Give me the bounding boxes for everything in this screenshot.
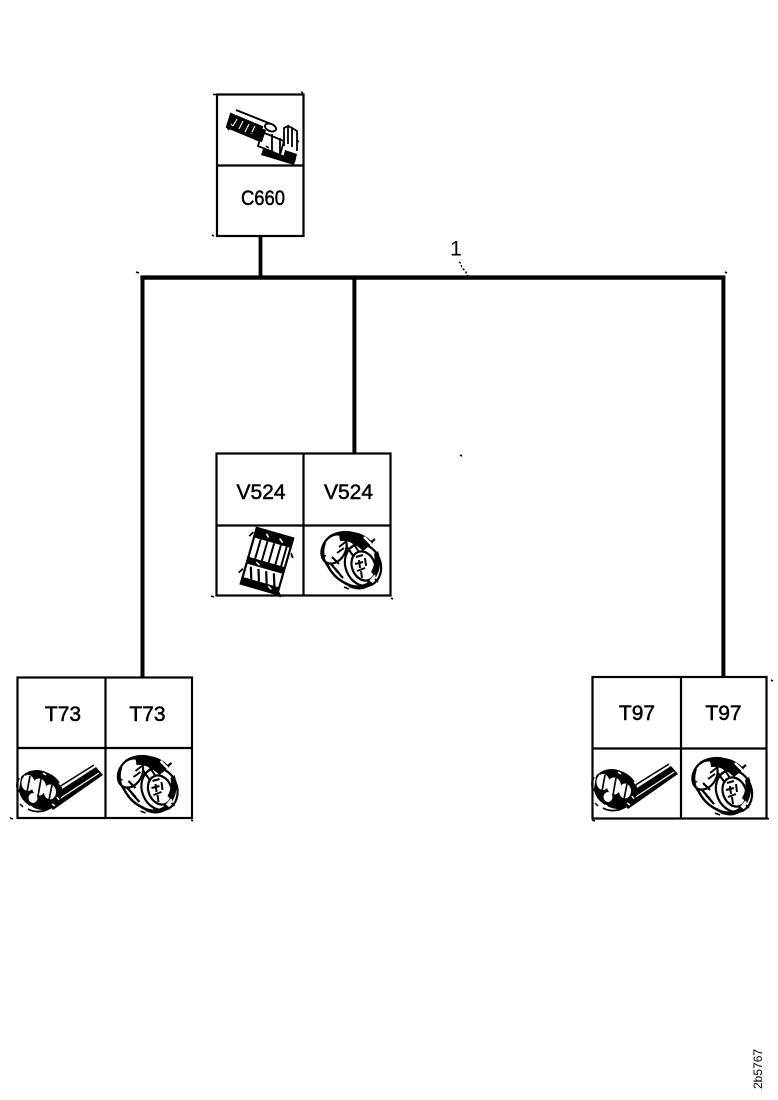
svg-text:T97: T97 (619, 702, 655, 725)
svg-text:1: 1 (450, 238, 462, 261)
svg-text:T73: T73 (45, 703, 81, 726)
svg-text:T73: T73 (129, 703, 165, 726)
svg-text:V524: V524 (236, 481, 285, 504)
svg-text:V524: V524 (324, 481, 373, 504)
svg-text:C660: C660 (241, 187, 285, 210)
svg-text:T97: T97 (705, 702, 741, 725)
svg-text:2b5767: 2b5767 (751, 1049, 765, 1089)
